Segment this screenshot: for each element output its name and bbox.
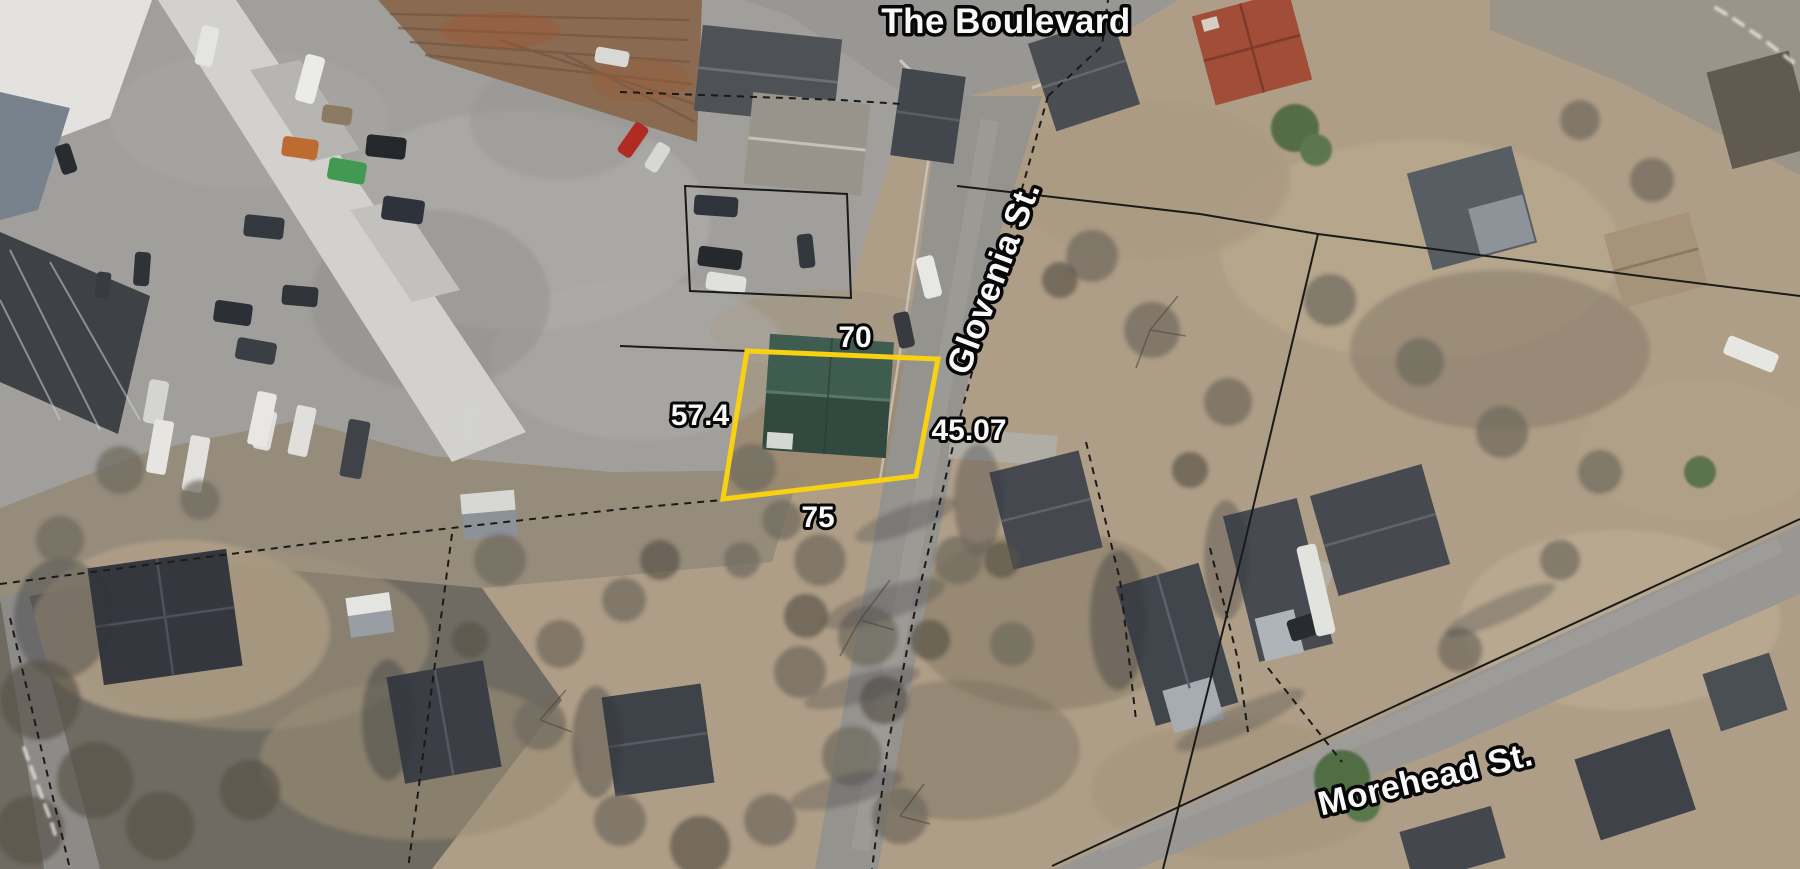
photo-grain-overlay [0,0,1800,869]
aerial-map-svg: The Boulevard Glovenia St. Morehead St. … [0,0,1800,869]
aerial-map-canvas[interactable]: The Boulevard Glovenia St. Morehead St. … [0,0,1800,869]
